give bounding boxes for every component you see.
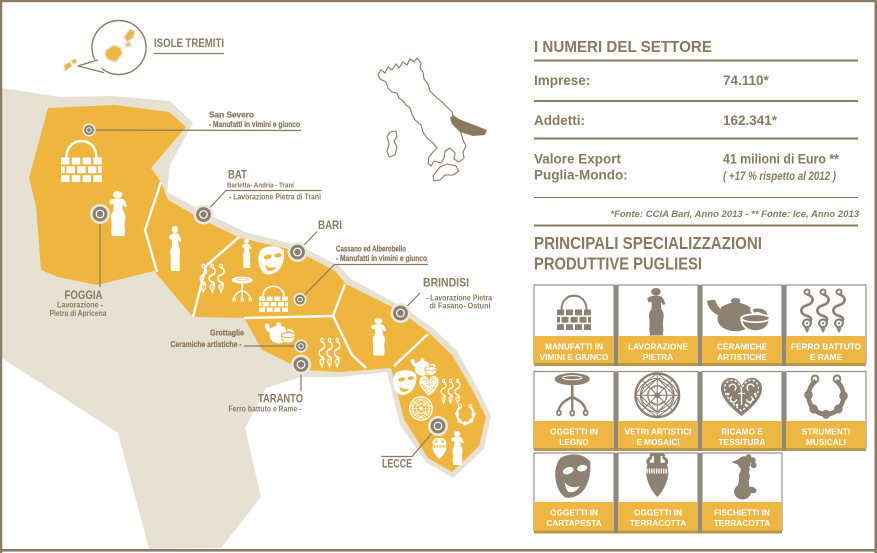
svg-text:ARTISTICHE: ARTISTICHE: [717, 352, 767, 362]
svg-text:STRUMENTI: STRUMENTI: [802, 427, 850, 437]
svg-text:Cassano ed Alberobello: Cassano ed Alberobello: [336, 245, 406, 254]
svg-text:( +17 % rispetto al 2012 ): ( +17 % rispetto al 2012 ): [723, 169, 836, 183]
svg-text:PRODUTTIVE PUGLIESI: PRODUTTIVE PUGLIESI: [534, 254, 702, 274]
svg-text:LEGNO: LEGNO: [559, 437, 589, 447]
svg-text:LECCE: LECCE: [382, 457, 412, 471]
svg-text:PIETRA: PIETRA: [643, 352, 673, 362]
svg-text:Pietra di Apricena: Pietra di Apricena: [50, 309, 107, 318]
svg-text:MANUFATTI IN: MANUFATTI IN: [545, 342, 603, 352]
svg-text:Barletta- Andria - Trani: Barletta- Andria - Trani: [227, 181, 294, 190]
svg-text:CARTAPESTA: CARTAPESTA: [546, 518, 601, 528]
svg-text:OGGETTI IN: OGGETTI IN: [550, 508, 598, 518]
svg-text:OGGETTI IN: OGGETTI IN: [634, 508, 682, 518]
svg-text:E MOSAICI: E MOSAICI: [636, 437, 679, 447]
svg-text:- Manufatti in vimini e giunco: - Manufatti in vimini e giunco: [336, 254, 427, 263]
svg-text:Addetti:: Addetti:: [534, 113, 585, 128]
svg-text:74.110*: 74.110*: [723, 73, 770, 88]
svg-text:TARANTO: TARANTO: [258, 392, 303, 406]
svg-text:Ferro battuto e Rame -: Ferro battuto e Rame -: [229, 405, 302, 414]
svg-text:PRINCIPALI SPECIALIZZAZIONI: PRINCIPALI SPECIALIZZAZIONI: [534, 233, 762, 253]
svg-text:Imprese:: Imprese:: [534, 73, 590, 88]
svg-text:- Lavorazione Pietra di Trani: - Lavorazione Pietra di Trani: [229, 193, 321, 202]
svg-text:ISOLE TREMITI: ISOLE TREMITI: [154, 36, 224, 50]
svg-text:BARI: BARI: [318, 218, 342, 232]
svg-text:E RAME: E RAME: [810, 352, 843, 362]
svg-text:162.341*: 162.341*: [723, 113, 778, 128]
svg-text:BRINDISI: BRINDISI: [423, 276, 469, 290]
svg-text:TESSITURA: TESSITURA: [718, 437, 765, 447]
svg-text:41 milioni di Euro **: 41 milioni di Euro **: [723, 152, 840, 167]
svg-text:VIMINI E GIUNCO: VIMINI E GIUNCO: [540, 352, 609, 362]
svg-text:Ceramiche artistiche -: Ceramiche artistiche -: [171, 340, 242, 349]
svg-text:Grottaglie: Grottaglie: [210, 329, 244, 338]
svg-text:*Fonte: CCIA Bari, Anno 2013 -: *Fonte: CCIA Bari, Anno 2013 - ** Fonte:…: [610, 209, 859, 220]
svg-text:di Fasano- Ostuni: di Fasano- Ostuni: [430, 302, 491, 311]
svg-text:RICAMO E: RICAMO E: [721, 427, 763, 437]
svg-text:CERAMICHE: CERAMICHE: [717, 342, 768, 352]
svg-text:MUSICALI: MUSICALI: [806, 437, 846, 447]
svg-text:LAVORAZIONE: LAVORAZIONE: [628, 342, 688, 352]
svg-text:I NUMERI DEL SETTORE: I NUMERI DEL SETTORE: [534, 39, 712, 56]
svg-text:FISCHIETTI IN: FISCHIETTI IN: [714, 508, 770, 518]
svg-text:Valore Export: Valore Export: [534, 152, 622, 167]
svg-text:OGGETTI IN: OGGETTI IN: [550, 427, 598, 437]
svg-text:FERRO BATTUTO: FERRO BATTUTO: [791, 342, 862, 352]
svg-text:TERRACOTTA: TERRACOTTA: [630, 518, 687, 528]
svg-text:Puglia-Mondo:: Puglia-Mondo:: [534, 168, 628, 183]
svg-text:San Severo: San Severo: [209, 111, 254, 120]
svg-text:TERRACOTTA: TERRACOTTA: [714, 518, 771, 528]
svg-text:- Manufatti in vimini e giunco: - Manufatti in vimini e giunco: [209, 120, 300, 129]
svg-text:BAT: BAT: [228, 168, 248, 182]
svg-text:VETRI ARTISTICI: VETRI ARTISTICI: [625, 427, 692, 437]
